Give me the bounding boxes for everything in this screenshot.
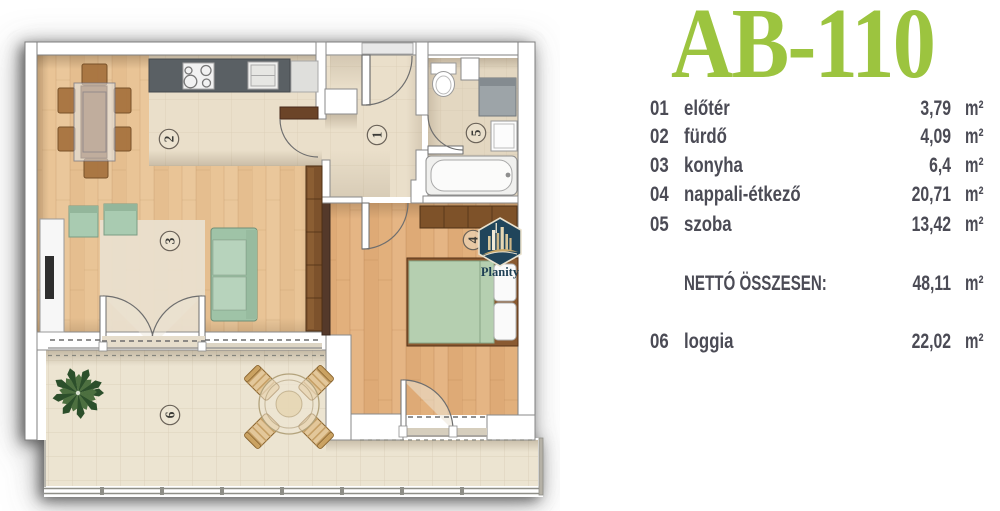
svg-text:3: 3 (163, 237, 178, 244)
svg-text:2: 2 (162, 135, 177, 142)
svg-text:1: 1 (370, 131, 385, 138)
svg-text:6: 6 (163, 411, 178, 418)
svg-text:Planity: Planity (481, 265, 520, 279)
svg-text:5: 5 (469, 129, 484, 136)
